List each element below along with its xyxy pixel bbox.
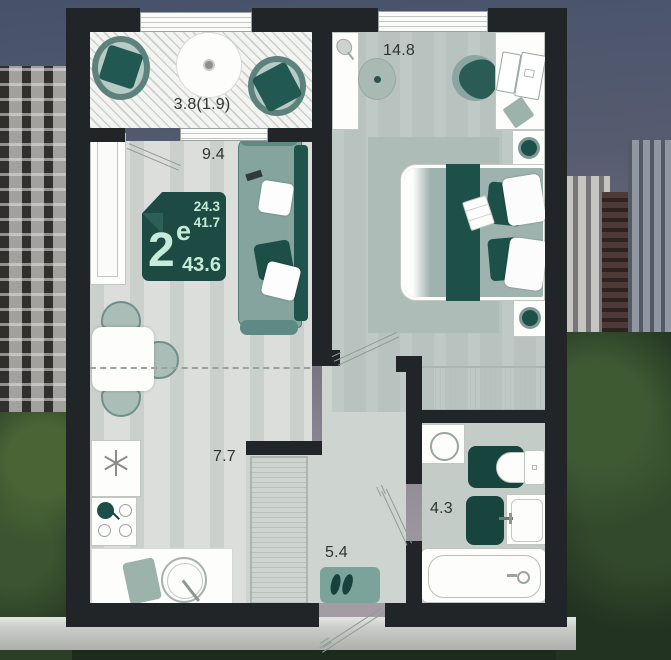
bedroom-pouf-center bbox=[374, 76, 381, 83]
badge-area-no-balcony: 41.7 bbox=[194, 216, 220, 230]
wall-hall-bath-lower bbox=[406, 541, 422, 603]
badge-living-area: 24.3 bbox=[194, 200, 220, 214]
balcony-table-candle bbox=[203, 59, 215, 71]
bath-sink-mat bbox=[466, 496, 504, 545]
stove-burner bbox=[98, 524, 111, 537]
bed-pillow-white-bottom bbox=[504, 237, 549, 292]
bed-blanket-fold bbox=[404, 168, 430, 297]
bedroom-wardrobe-hangers bbox=[418, 366, 547, 411]
building-left bbox=[0, 66, 72, 446]
zone-divider-dashed-line bbox=[90, 367, 310, 369]
kitchen-area-label: 7.7 bbox=[213, 448, 236, 466]
bath-sink bbox=[506, 494, 546, 545]
laptop-trackpad bbox=[524, 68, 535, 78]
wall-bath-top bbox=[414, 410, 547, 423]
lamp-bottom bbox=[519, 307, 541, 329]
balcony-area-label: 3.8(1.9) bbox=[150, 96, 254, 114]
washer-drum bbox=[430, 432, 459, 461]
sofa-back-cushions bbox=[294, 145, 308, 321]
sofa-armrest-bottom bbox=[240, 320, 298, 335]
bed-pillow-white-top bbox=[501, 173, 546, 226]
wall-balcony-seg bbox=[90, 128, 125, 142]
wall-corridor-hall bbox=[246, 441, 322, 455]
wall-bottom-left bbox=[66, 603, 319, 627]
bed-runner bbox=[446, 164, 480, 301]
stove-burner bbox=[119, 504, 132, 517]
trees-right bbox=[556, 332, 671, 660]
kitchen-sink bbox=[161, 557, 207, 603]
wall-living-bedroom bbox=[312, 32, 332, 362]
hallway-wardrobe-hangers bbox=[250, 456, 308, 605]
washing-machine bbox=[420, 424, 465, 464]
toilet-button bbox=[532, 465, 537, 470]
balcony-glazing-window bbox=[140, 12, 252, 32]
bathroom-area-label: 4.3 bbox=[430, 500, 453, 518]
bathtub-faucet bbox=[517, 571, 530, 584]
sink-inner bbox=[511, 499, 543, 542]
stove-burner bbox=[119, 524, 132, 537]
living-area-label: 9.4 bbox=[202, 146, 225, 164]
wall-bottom-right bbox=[385, 603, 567, 627]
laptop-icon bbox=[496, 48, 549, 99]
floorplan-image: 24.3 41.7 2 е 43.6 bbox=[0, 0, 671, 660]
wall-balcony-seg2 bbox=[268, 128, 332, 142]
bedroom-area-label: 14.8 bbox=[383, 42, 415, 60]
living-wardrobe-door bbox=[97, 141, 118, 277]
apartment-type-badge: 24.3 41.7 2 е 43.6 bbox=[142, 192, 226, 281]
wall-top-mid bbox=[252, 8, 378, 32]
faucet-handle bbox=[509, 513, 512, 524]
badge-rooms-count: 2 bbox=[148, 227, 175, 275]
balcony-living-window bbox=[180, 128, 268, 141]
wall-left bbox=[66, 8, 90, 625]
sofa-pillow-white-top bbox=[258, 180, 295, 217]
dining-table bbox=[92, 327, 154, 391]
hallway-area-label: 5.4 bbox=[325, 544, 348, 562]
mirror-handle bbox=[347, 52, 354, 60]
badge-type-letter: е bbox=[176, 218, 191, 245]
bedroom-window bbox=[378, 11, 488, 32]
bathtub-spout bbox=[507, 574, 517, 577]
wall-right bbox=[545, 8, 567, 625]
bathtub bbox=[420, 548, 547, 603]
wall-bedroom-corner bbox=[396, 356, 418, 372]
fridge bbox=[91, 440, 141, 497]
lamp-top bbox=[518, 137, 540, 159]
badge-total-area: 43.6 bbox=[182, 255, 221, 275]
